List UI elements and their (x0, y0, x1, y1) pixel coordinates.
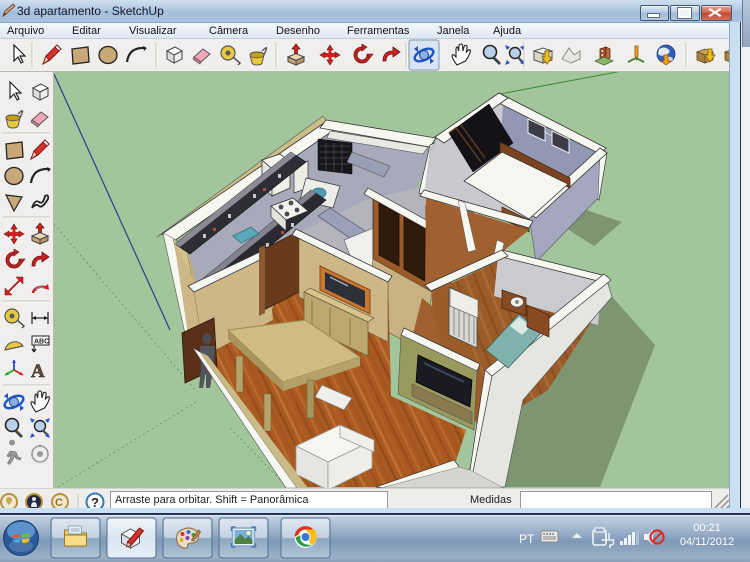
svg-text:PT: PT (519, 532, 535, 546)
